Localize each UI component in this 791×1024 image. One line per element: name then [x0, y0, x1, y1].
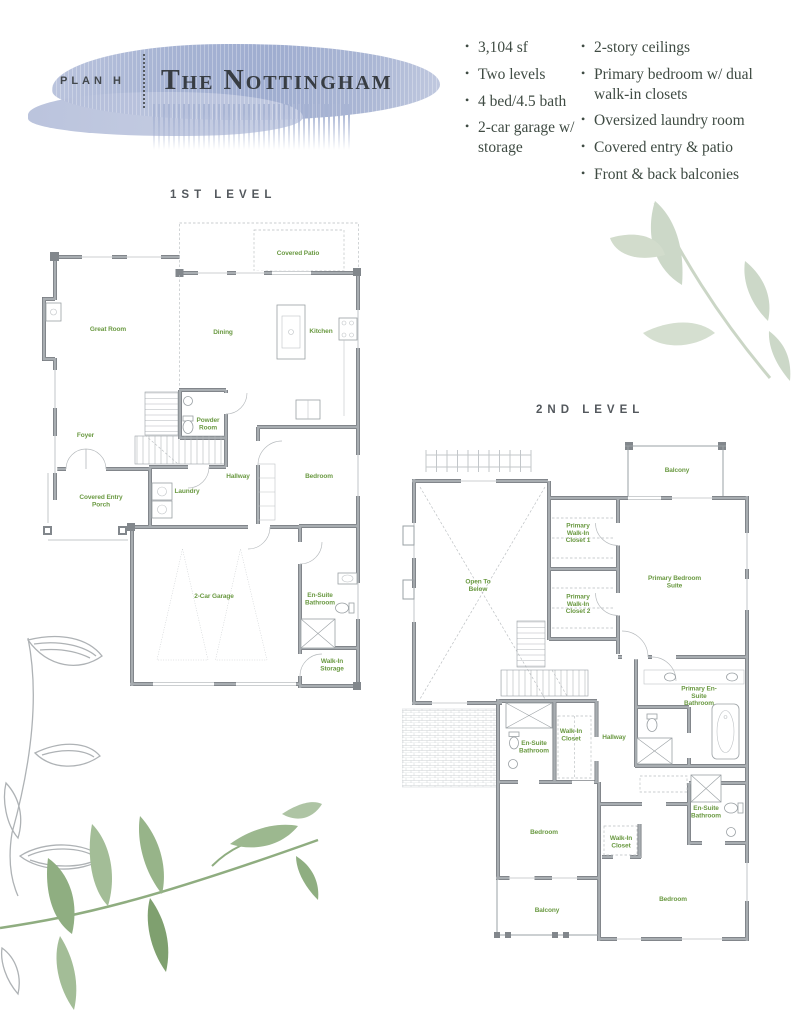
room-label-walk-in-closet-lower: Walk-In Closet — [606, 835, 637, 850]
room-label-balcony-top: Balcony — [655, 466, 700, 473]
room-label-bedroom-left: Bedroom — [522, 828, 567, 835]
room-label-primary-walk-in-closet-1: Primary Walk-In Closet 1 — [558, 522, 598, 544]
watercolor-leaf-branch — [0, 802, 322, 1010]
trellis — [426, 450, 531, 472]
room-label-covered-patio: Covered Patio — [263, 249, 333, 256]
feature-item: 4 bed/4.5 bath — [465, 92, 581, 112]
plan-label: PLAN H — [60, 75, 125, 87]
header-text-row: PLAN H The Nottingham — [28, 34, 444, 128]
room-label-en-suite-bathroom-right: En-Suite Bathroom — [689, 805, 724, 820]
stairs — [501, 621, 588, 696]
floor-plan-level2: Balcony Open To Below Primary Walk-In Cl… — [402, 438, 762, 948]
feature-item: 3,104 sf — [465, 38, 581, 58]
room-label-en-suite-bathroom-left: En-Suite Bathroom — [517, 740, 552, 755]
room-label-great-room: Great Room — [78, 325, 138, 332]
room-label-kitchen: Kitchen — [299, 327, 344, 334]
room-label-open-to-below: Open To Below — [458, 578, 498, 593]
room-label-powder-room: Powder Room — [192, 417, 224, 432]
room-label-hallway: Hallway — [594, 733, 634, 740]
room-label-primary-bedroom-suite: Primary Bedroom Suite — [642, 575, 707, 590]
feature-item: Primary bedroom w/ dual walk-in closets — [581, 65, 767, 105]
left-ensuite-fixtures — [506, 703, 552, 769]
feature-item: Covered entry & patio — [581, 138, 767, 158]
room-label-hallway: Hallway — [218, 472, 258, 479]
room-label-primary-walk-in-closet-2: Primary Walk-In Closet 2 — [558, 593, 598, 615]
feature-item: 2-car garage w/ storage — [465, 118, 581, 158]
watercolor-leaves-top-right — [585, 193, 791, 393]
room-label-bedroom-bottom: Bedroom — [651, 895, 696, 902]
room-label-bedroom: Bedroom — [297, 472, 342, 479]
room-label-dining: Dining — [201, 328, 246, 335]
garage-parking-guides — [157, 549, 267, 660]
floor-plan-level1: Covered Patio Great Room Dining Kitchen … — [38, 220, 378, 700]
feature-list-right: 2-story ceilings Primary bedroom w/ dual… — [581, 38, 767, 192]
feature-item: 2-story ceilings — [581, 38, 767, 58]
fireplace — [46, 303, 61, 321]
header: PLAN H The Nottingham — [28, 34, 444, 150]
feature-item: Front & back balconies — [581, 165, 767, 185]
feature-item: Oversized laundry room — [581, 111, 767, 131]
level1-heading: 1ST LEVEL — [170, 189, 276, 201]
room-label-walk-in-closet-upper: Walk-In Closet — [554, 728, 589, 743]
room-label-balcony-bottom: Balcony — [525, 906, 570, 913]
room-label-laundry: Laundry — [167, 487, 207, 494]
room-label-covered-entry-porch: Covered Entry Porch — [79, 494, 124, 509]
feature-list-left: 3,104 sf Two levels 4 bed/4.5 bath 2-car… — [465, 38, 581, 165]
roof-below-texture — [402, 709, 497, 787]
dotted-divider — [143, 54, 145, 108]
brochure-page: PLAN H The Nottingham 3,104 sf Two level… — [0, 0, 791, 1024]
room-label-primary-en-suite-bathroom: Primary En-Suite Bathroom — [677, 685, 722, 707]
room-label-walk-in-storage: Walk-In Storage — [312, 658, 352, 673]
room-label-2-car-garage: 2-Car Garage — [187, 592, 242, 599]
level2-heading: 2ND LEVEL — [536, 404, 644, 416]
door-arcs — [66, 393, 322, 676]
room-label-en-suite-bathroom: En-Suite Bathroom — [300, 592, 340, 607]
floor-plan-level1-drawing — [38, 220, 378, 700]
page-title: The Nottingham — [161, 65, 393, 97]
feature-item: Two levels — [465, 65, 581, 85]
room-label-foyer: Foyer — [68, 431, 103, 438]
covered-patio-outline — [180, 223, 359, 273]
bedroom-closet — [258, 464, 275, 520]
ensuite-bathroom-fixtures — [301, 573, 357, 648]
refrigerator-icon — [296, 400, 320, 419]
